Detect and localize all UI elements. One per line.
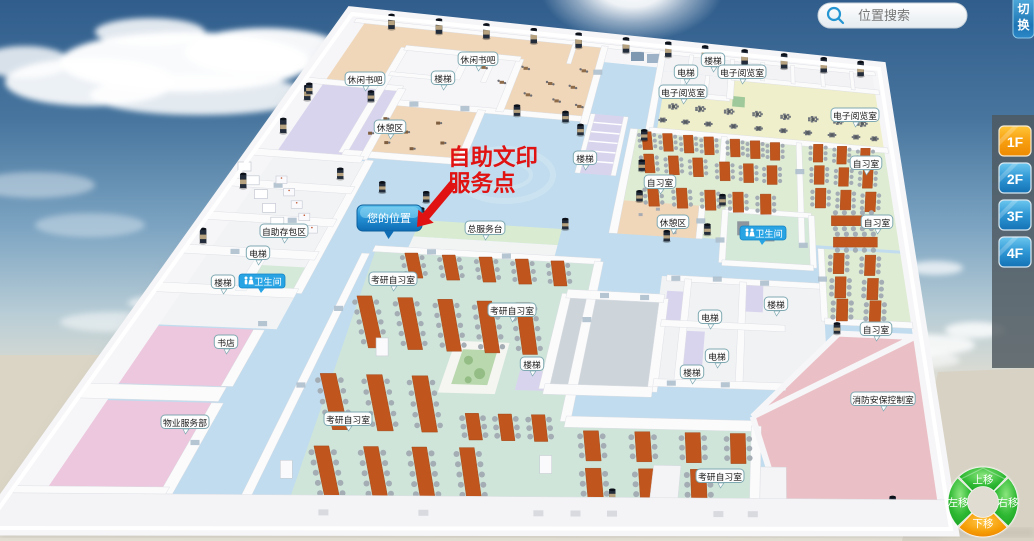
svg-text:物业服务部: 物业服务部	[163, 417, 207, 428]
svg-text:自助存包区: 自助存包区	[262, 226, 306, 237]
svg-text:电子阅览室: 电子阅览室	[661, 87, 705, 98]
svg-text:卫生间: 卫生间	[254, 276, 282, 287]
svg-text:消防安保控制室: 消防安保控制室	[852, 394, 914, 405]
svg-text:换: 换	[1017, 17, 1030, 32]
svg-text:休闲书吧: 休闲书吧	[347, 74, 382, 85]
svg-text:电梯: 电梯	[701, 312, 719, 323]
svg-text:自习室: 自习室	[853, 158, 880, 169]
svg-text:休憩区: 休憩区	[660, 217, 687, 228]
svg-text:电子阅览室: 电子阅览室	[720, 67, 764, 78]
svg-text:4F: 4F	[1007, 245, 1024, 261]
svg-text:考研自习室: 考研自习室	[490, 305, 534, 316]
svg-text:书店: 书店	[217, 337, 235, 348]
svg-text:左移: 左移	[948, 496, 969, 509]
svg-text:卫生间: 卫生间	[755, 228, 783, 239]
svg-text:考研自习室: 考研自习室	[371, 274, 415, 285]
svg-text:楼梯: 楼梯	[434, 73, 452, 84]
svg-text:切: 切	[1017, 2, 1029, 16]
svg-text:自习室: 自习室	[863, 324, 890, 335]
svg-text:楼梯: 楼梯	[576, 153, 594, 164]
svg-text:电子阅览室: 电子阅览室	[833, 110, 877, 121]
svg-text:自习室: 自习室	[864, 217, 891, 228]
svg-text:位置搜索: 位置搜索	[858, 8, 910, 23]
svg-text:考研自习室: 考研自习室	[326, 414, 370, 425]
svg-text:电梯: 电梯	[249, 248, 267, 259]
svg-text:楼梯: 楼梯	[214, 277, 232, 288]
svg-text:1F: 1F	[1007, 134, 1024, 150]
svg-text:电梯: 电梯	[708, 351, 726, 362]
svg-text:休闲书吧: 休闲书吧	[460, 54, 495, 65]
svg-text:电梯: 电梯	[677, 67, 695, 78]
svg-text:楼梯: 楼梯	[523, 359, 541, 370]
svg-text:下移: 下移	[973, 517, 994, 530]
svg-text:休憩区: 休憩区	[377, 122, 404, 133]
svg-text:3F: 3F	[1007, 208, 1024, 224]
svg-text:总服务台: 总服务台	[467, 223, 502, 234]
svg-text:上移: 上移	[973, 473, 994, 486]
svg-text:右移: 右移	[998, 496, 1019, 509]
svg-text:楼梯: 楼梯	[704, 55, 722, 66]
svg-text:自助文印: 自助文印	[448, 144, 538, 170]
svg-text:楼梯: 楼梯	[683, 367, 701, 378]
svg-text:自习室: 自习室	[647, 177, 674, 188]
svg-text:您的位置: 您的位置	[367, 211, 411, 225]
svg-text:服务点: 服务点	[448, 171, 516, 196]
svg-text:楼梯: 楼梯	[767, 299, 785, 310]
svg-text:2F: 2F	[1007, 171, 1024, 187]
svg-text:考研自习室: 考研自习室	[698, 471, 742, 482]
